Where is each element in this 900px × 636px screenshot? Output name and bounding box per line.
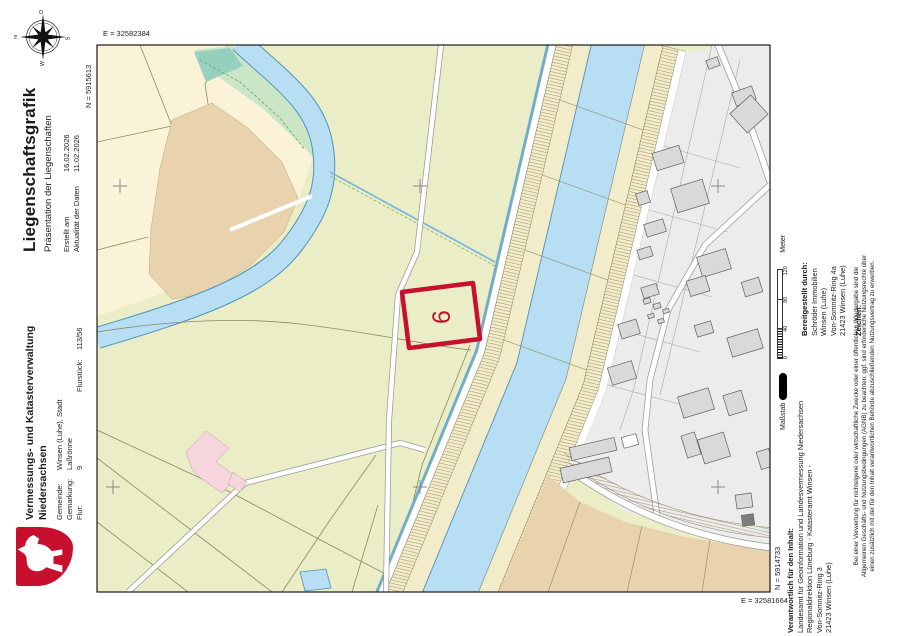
niedersachsen-coat-of-arms [16, 527, 73, 586]
gemarkung-label: Gemarkung: [65, 470, 75, 520]
gemeinde-label: Gemeinde: [55, 470, 65, 520]
scale-tick-0: 0 [783, 356, 789, 359]
disclaimer-line: Bei einer Verwertung für nichteigene ode… [853, 230, 861, 602]
responsible-line: Regionaldirektion Lüneburg - Katasteramt… [805, 375, 815, 633]
authority-block: Vermessungs- und Katasterverwaltung Nied… [24, 305, 85, 520]
compass-label-south: S [66, 36, 72, 40]
scale-tick-80: 80 [783, 297, 789, 303]
flurstueck-value: 113/56 [75, 305, 85, 350]
coord-top-e: E = 32582384 [103, 29, 150, 38]
responsible-block: Verantwortlich für den Inhalt: Landesamt… [786, 375, 834, 633]
flur-value: 9 [75, 392, 85, 470]
scale-segment-80-120 [778, 271, 782, 300]
flur-label: Flur: [75, 470, 85, 520]
provider-line: Winsen (Luhe) [819, 206, 829, 336]
provider-line: Schröder Immobilien [810, 206, 820, 336]
scale-tick-40: 40 [783, 326, 789, 332]
coord-bottom-e: E = 32581664 [741, 596, 788, 605]
scale-tick-120: 120 [783, 266, 789, 275]
gemeinde-value: Winsen (Luhe), Stadt [55, 305, 65, 470]
disclaimer-line: Allgemeinen Geschäfts- und Nutzungsbedin… [861, 230, 869, 602]
coord-top-n: N = 5915613 [84, 65, 93, 108]
responsible-line: Landesamt für Geoinformation und Landesv… [796, 375, 806, 633]
compass-label-north: N [14, 35, 19, 39]
disclaimer-line: einen zusätzlich mit der für den Inhalt … [869, 230, 877, 602]
compass-label-west: W [40, 60, 46, 66]
responsible-line: Von-Somnitz-Ring 3 [815, 375, 825, 633]
provider-header: Bereitgestellt durch: [800, 206, 810, 336]
disclaimer-block: Bei einer Verwertung für nichteigene ode… [853, 230, 878, 602]
scale-bar: 0 40 80 120 [775, 259, 791, 359]
cadastral-map: 6 E = 32582384 N = 5915613 N = 5914733 E… [0, 0, 900, 636]
scale-segment-0-40 [778, 329, 782, 358]
compass-label-east: O [39, 9, 45, 14]
responsible-line: 21423 Winsen (Luhe) [824, 375, 834, 633]
saxon-steed-icon [16, 527, 73, 586]
responsible-header: Verantwortlich für den Inhalt: [786, 375, 796, 633]
provider-line: Von-Somnitz-Ring 4a [829, 206, 839, 336]
scale-segment-40-80 [778, 300, 782, 329]
flurstueck-label: Flurstück: [75, 350, 85, 392]
gemarkung-value: Laßrönne [65, 305, 75, 470]
currency-value: 11.02.2026 [72, 82, 82, 172]
authority-name-line1: Vermessungs- und Katasterverwaltung [24, 305, 37, 520]
authority-name-line2: Niedersachsen [37, 305, 50, 520]
scale-unit-label: Meter [780, 235, 787, 253]
currency-label: Aktualität der Daten [72, 172, 82, 252]
created-label: Erstellt am [62, 172, 72, 252]
liegenschaftsgrafik-page: 6 E = 32582384 N = 5915613 N = 5914733 E… [0, 0, 900, 636]
created-value: 16.02.2026 [62, 82, 72, 172]
highlight-parcel-label: 6 [428, 310, 456, 324]
page-title: Liegenschaftsgrafik [20, 82, 40, 252]
coord-bottom-n: N = 5914733 [773, 547, 782, 590]
title-block: Liegenschaftsgrafik Präsentation der Lie… [20, 82, 82, 252]
pond [300, 569, 331, 591]
provider-line: 21423 Winsen (Luhe) [838, 206, 848, 336]
page-subtitle: Präsentation der Liegenschaften [43, 82, 54, 252]
compass-star [20, 14, 66, 60]
compass-rose: N O S W [14, 8, 72, 66]
